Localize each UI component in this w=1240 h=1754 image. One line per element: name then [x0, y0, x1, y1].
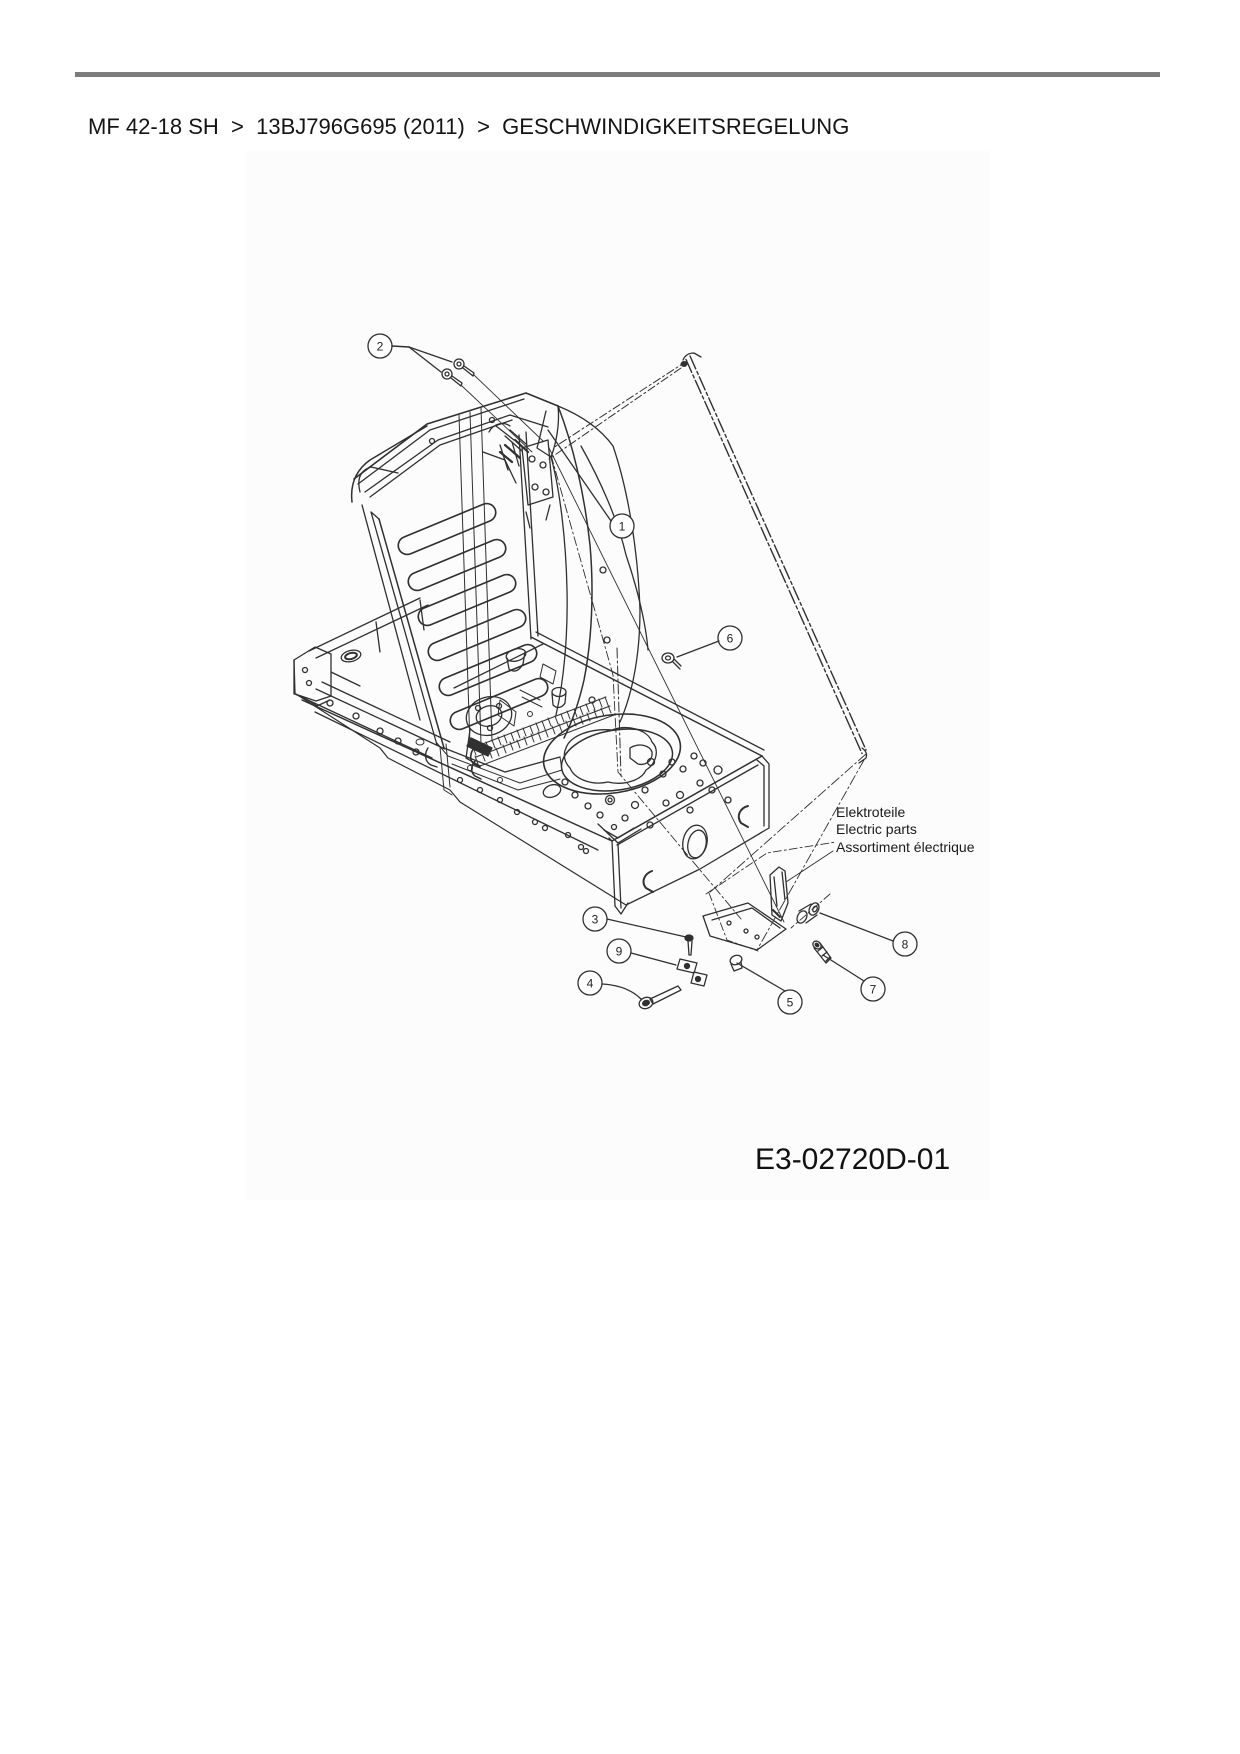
svg-text:E3-02720D-01: E3-02720D-01: [755, 1143, 950, 1176]
svg-text:6: 6: [727, 632, 734, 646]
svg-text:5: 5: [787, 996, 794, 1010]
svg-text:3: 3: [592, 913, 599, 927]
svg-text:9: 9: [616, 945, 623, 959]
svg-text:Electric parts: Electric parts: [836, 821, 917, 837]
svg-text:Assortiment électrique: Assortiment électrique: [836, 839, 975, 855]
svg-text:Elektroteile: Elektroteile: [836, 804, 905, 820]
svg-text:1: 1: [619, 520, 626, 534]
svg-text:2: 2: [377, 340, 384, 354]
svg-text:8: 8: [902, 938, 909, 952]
svg-text:4: 4: [587, 977, 594, 991]
svg-text:7: 7: [870, 983, 877, 997]
